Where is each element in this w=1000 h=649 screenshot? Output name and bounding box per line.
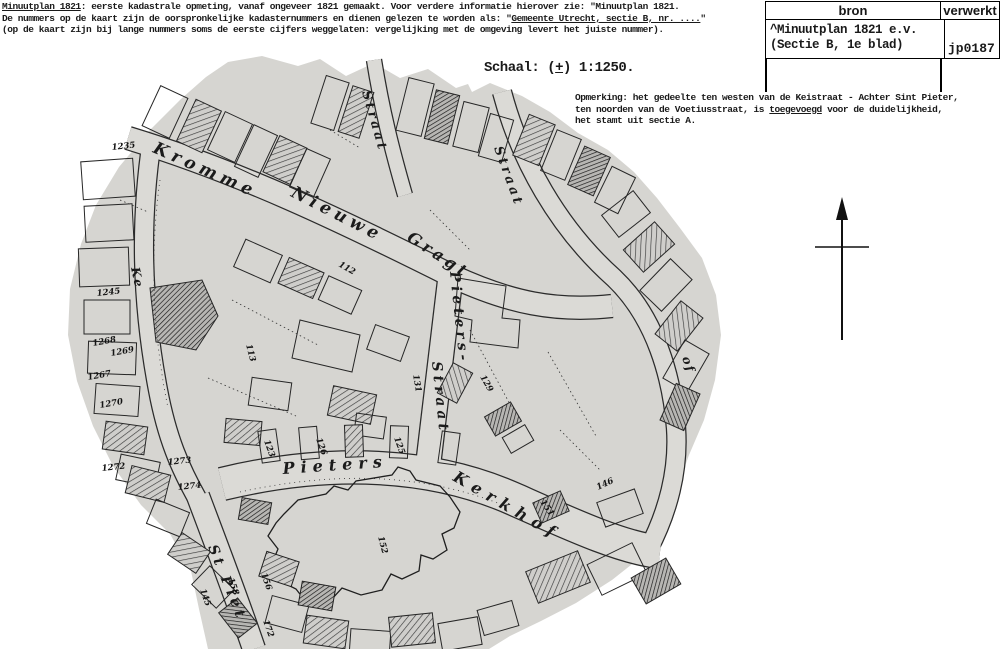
scanned-archive-page: { "page": {"background": "#ffffff", "ink… <box>0 0 1000 649</box>
north-arrow-icon <box>815 197 869 340</box>
cadastral-map: KrommeNieuweGragtStraatStraatPieters-Str… <box>0 0 1000 649</box>
